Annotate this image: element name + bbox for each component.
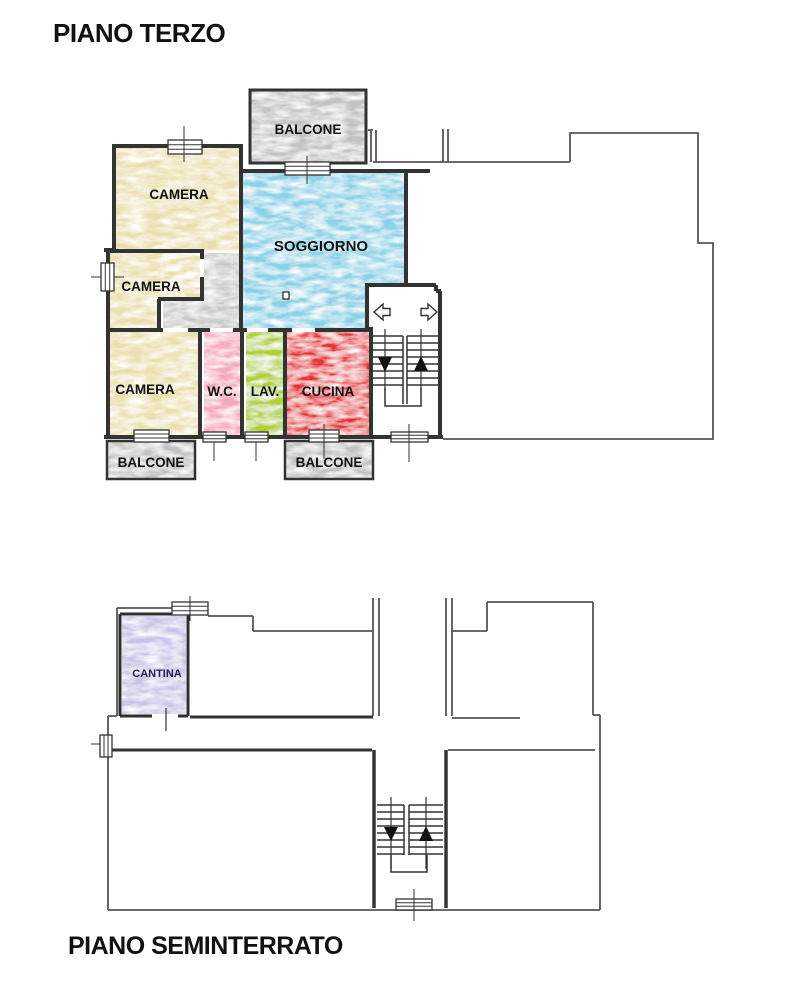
window-stairwell-lower (396, 889, 432, 921)
column-symbol (283, 292, 289, 299)
floorplan-document: PIANO TERZO (0, 0, 788, 1000)
label-soggiorno: SOGGIORNO (274, 238, 369, 255)
upper-floor-title: PIANO TERZO (53, 18, 225, 48)
floor-piano-seminterrato: CANTINA PIANO SEMINTERRATO (68, 596, 600, 960)
lower-floor-title: PIANO SEMINTERRATO (68, 932, 343, 960)
stair-landing-lower (391, 855, 427, 872)
exit-left-arrow-icon (374, 304, 390, 320)
stairs-down-icon (384, 827, 398, 841)
window-wc (203, 432, 226, 461)
label-balcone-top: BALCONE (275, 122, 342, 137)
window-camera-bottom (134, 430, 169, 442)
label-balcone-bottom-right: BALCONE (296, 455, 363, 470)
label-cucina: CUCINA (302, 384, 355, 399)
window-stairwell-upper (391, 424, 428, 462)
stairwell-walls-lower (374, 750, 446, 908)
label-lav: LAV. (251, 384, 280, 399)
floorplan-canvas: PIANO TERZO (0, 0, 788, 1000)
window-corridor-left (91, 735, 112, 757)
label-camera-top: CAMERA (149, 187, 208, 202)
floor-piano-terzo: PIANO TERZO (53, 18, 713, 479)
label-cantina: CANTINA (132, 668, 182, 680)
label-camera-bottom: CAMERA (115, 382, 174, 397)
room-cantina (122, 616, 186, 714)
window-lav (245, 432, 268, 461)
stairwell-lower (374, 750, 446, 908)
exit-right-arrow-icon (421, 304, 437, 320)
label-balcone-bottom-left: BALCONE (118, 455, 185, 470)
label-camera-mid: CAMERA (121, 279, 180, 294)
stair-treads-upper (373, 336, 438, 404)
corridor-walls-lower (108, 717, 373, 750)
label-wc: W.C. (207, 384, 236, 399)
stairwell-upper (373, 304, 438, 406)
